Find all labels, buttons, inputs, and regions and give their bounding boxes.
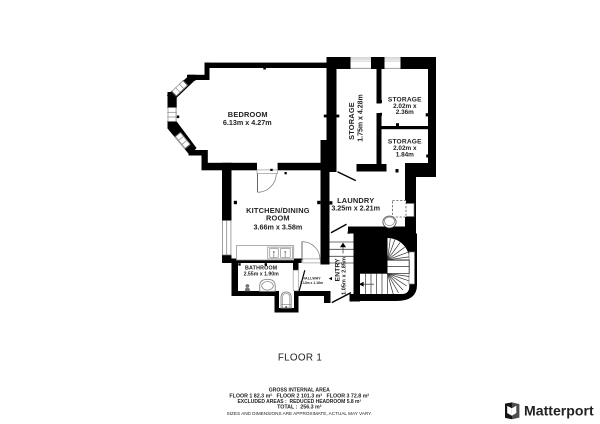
svg-text:Matterport: Matterport xyxy=(524,402,594,418)
svg-text:FLOOR 1: FLOOR 1 xyxy=(278,352,323,363)
svg-text:STORAGE: STORAGE xyxy=(347,102,356,140)
svg-text:TOTAL : 256.3 m²: TOTAL : 256.3 m² xyxy=(277,405,322,411)
svg-text:2.36m: 2.36m xyxy=(396,109,414,116)
svg-text:6.13m x 4.27m: 6.13m x 4.27m xyxy=(223,118,272,127)
svg-text:1.75m x 4.28m: 1.75m x 4.28m xyxy=(358,94,365,141)
svg-text:3.66m x 3.58m: 3.66m x 3.58m xyxy=(254,222,303,231)
svg-text:1.84m: 1.84m xyxy=(396,151,414,158)
svg-text:3.25m x 2.21m: 3.25m x 2.21m xyxy=(331,204,380,213)
svg-text:ROOM: ROOM xyxy=(266,214,290,223)
svg-text:SIZES AND DIMENSIONS ARE APPRO: SIZES AND DIMENSIONS ARE APPROXIMATE, AC… xyxy=(227,411,372,416)
svg-text:1.13m x 1.16m: 1.13m x 1.16m xyxy=(300,281,323,285)
svg-text:2.55m x 1.90m: 2.55m x 1.90m xyxy=(244,271,280,277)
svg-text:1.05m x 2.85m: 1.05m x 2.85m xyxy=(341,257,347,295)
svg-text:HALLWAY: HALLWAY xyxy=(302,277,321,281)
